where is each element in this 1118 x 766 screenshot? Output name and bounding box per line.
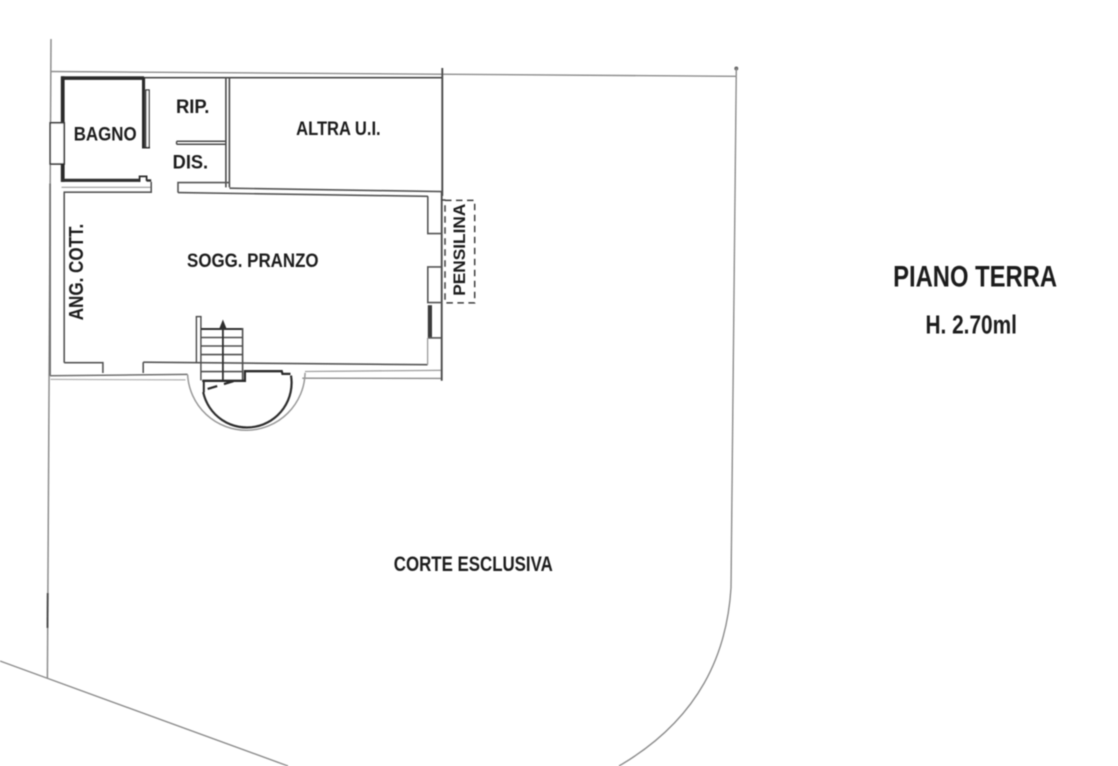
svg-text:PIANO TERRA: PIANO TERRA [893,261,1057,294]
svg-text:PENSILINA: PENSILINA [450,204,469,296]
svg-text:CORTE ESCLUSIVA: CORTE ESCLUSIVA [394,553,553,576]
svg-text:ANG. COTT.: ANG. COTT. [66,224,88,321]
svg-text:DIS.: DIS. [173,151,209,173]
svg-text:BAGNO: BAGNO [74,123,137,145]
svg-text:SOGG. PRANZO: SOGG. PRANZO [187,250,319,272]
svg-text:RIP.: RIP. [176,96,210,118]
svg-text:H. 2.70ml: H. 2.70ml [925,310,1017,340]
svg-text:ALTRA U.I.: ALTRA U.I. [296,118,381,140]
